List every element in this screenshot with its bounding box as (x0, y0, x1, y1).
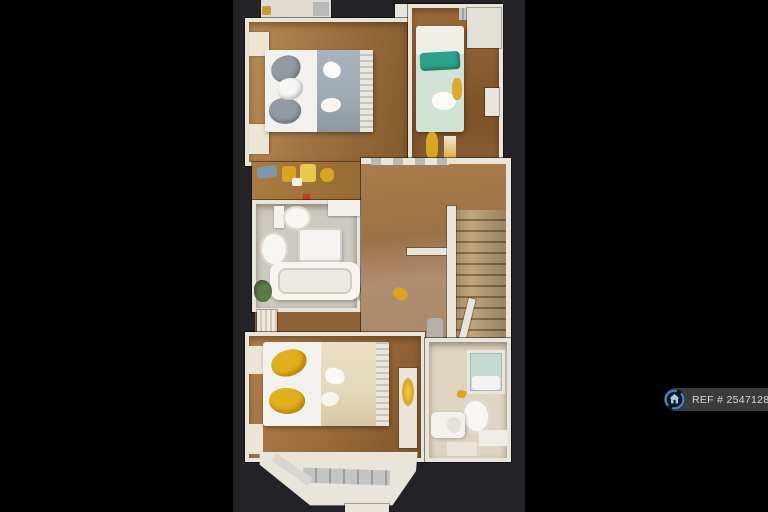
house-circle-icon (663, 388, 686, 411)
gold-lamp-glow (402, 378, 414, 406)
gray-pillow (267, 95, 303, 126)
room-shower (425, 338, 511, 462)
gold-object (456, 389, 467, 400)
gold-clothes (426, 132, 438, 158)
gold-items (320, 168, 334, 182)
banister (447, 206, 456, 346)
yellow-object (391, 285, 410, 303)
room-bedroom-single (408, 4, 503, 164)
radiator (399, 368, 417, 448)
blue-towel (256, 165, 277, 180)
double-bed-gold (263, 342, 389, 426)
gold-item (452, 78, 462, 100)
shower-enclosure (467, 350, 505, 394)
gold-items (300, 164, 316, 182)
bay-window (253, 452, 421, 510)
gold-pillow (269, 347, 310, 380)
room-bedroom-rear (245, 332, 425, 462)
room-landing (361, 158, 511, 350)
cream-blanket (321, 342, 376, 426)
window-sill (479, 430, 507, 446)
window-sill (447, 442, 477, 456)
ribbed-footboard (376, 342, 389, 426)
landing-right-wall (506, 158, 511, 350)
gold-box (262, 6, 271, 15)
gray-box (313, 2, 329, 16)
vanity-basin (431, 412, 465, 438)
bedside-cabinet (485, 88, 499, 116)
room-bathroom (252, 200, 361, 312)
ref-number: REF # 2547128 (692, 394, 768, 406)
pedestal-basin (260, 232, 288, 266)
vanity-shelf (252, 162, 361, 202)
shower-tray (472, 376, 500, 390)
teal-cushion (420, 51, 461, 71)
threshold (371, 158, 449, 165)
bathtub-basin (278, 268, 352, 294)
white-pillow (277, 78, 303, 100)
single-bed (416, 26, 464, 132)
toilet (283, 206, 311, 230)
bed-pillow-end (416, 26, 464, 54)
basin-bowl (447, 417, 461, 433)
floorplan-photo (233, 0, 525, 512)
ref-watermark-badge: REF # 2547128 (664, 388, 768, 411)
white-towel (292, 178, 302, 186)
counter-basin (328, 200, 360, 216)
bay-window-base (345, 504, 389, 512)
ribbed-headboard (360, 50, 373, 132)
gold-pillow (267, 386, 306, 417)
gray-blanket (317, 50, 362, 132)
bathtub (270, 262, 360, 300)
wardrobe (467, 8, 501, 48)
window-sill (249, 346, 263, 374)
plant (254, 280, 272, 302)
double-bed (265, 50, 373, 132)
shower-unit (298, 228, 342, 262)
window-sill (249, 424, 263, 454)
room-bedroom-front (245, 18, 412, 166)
